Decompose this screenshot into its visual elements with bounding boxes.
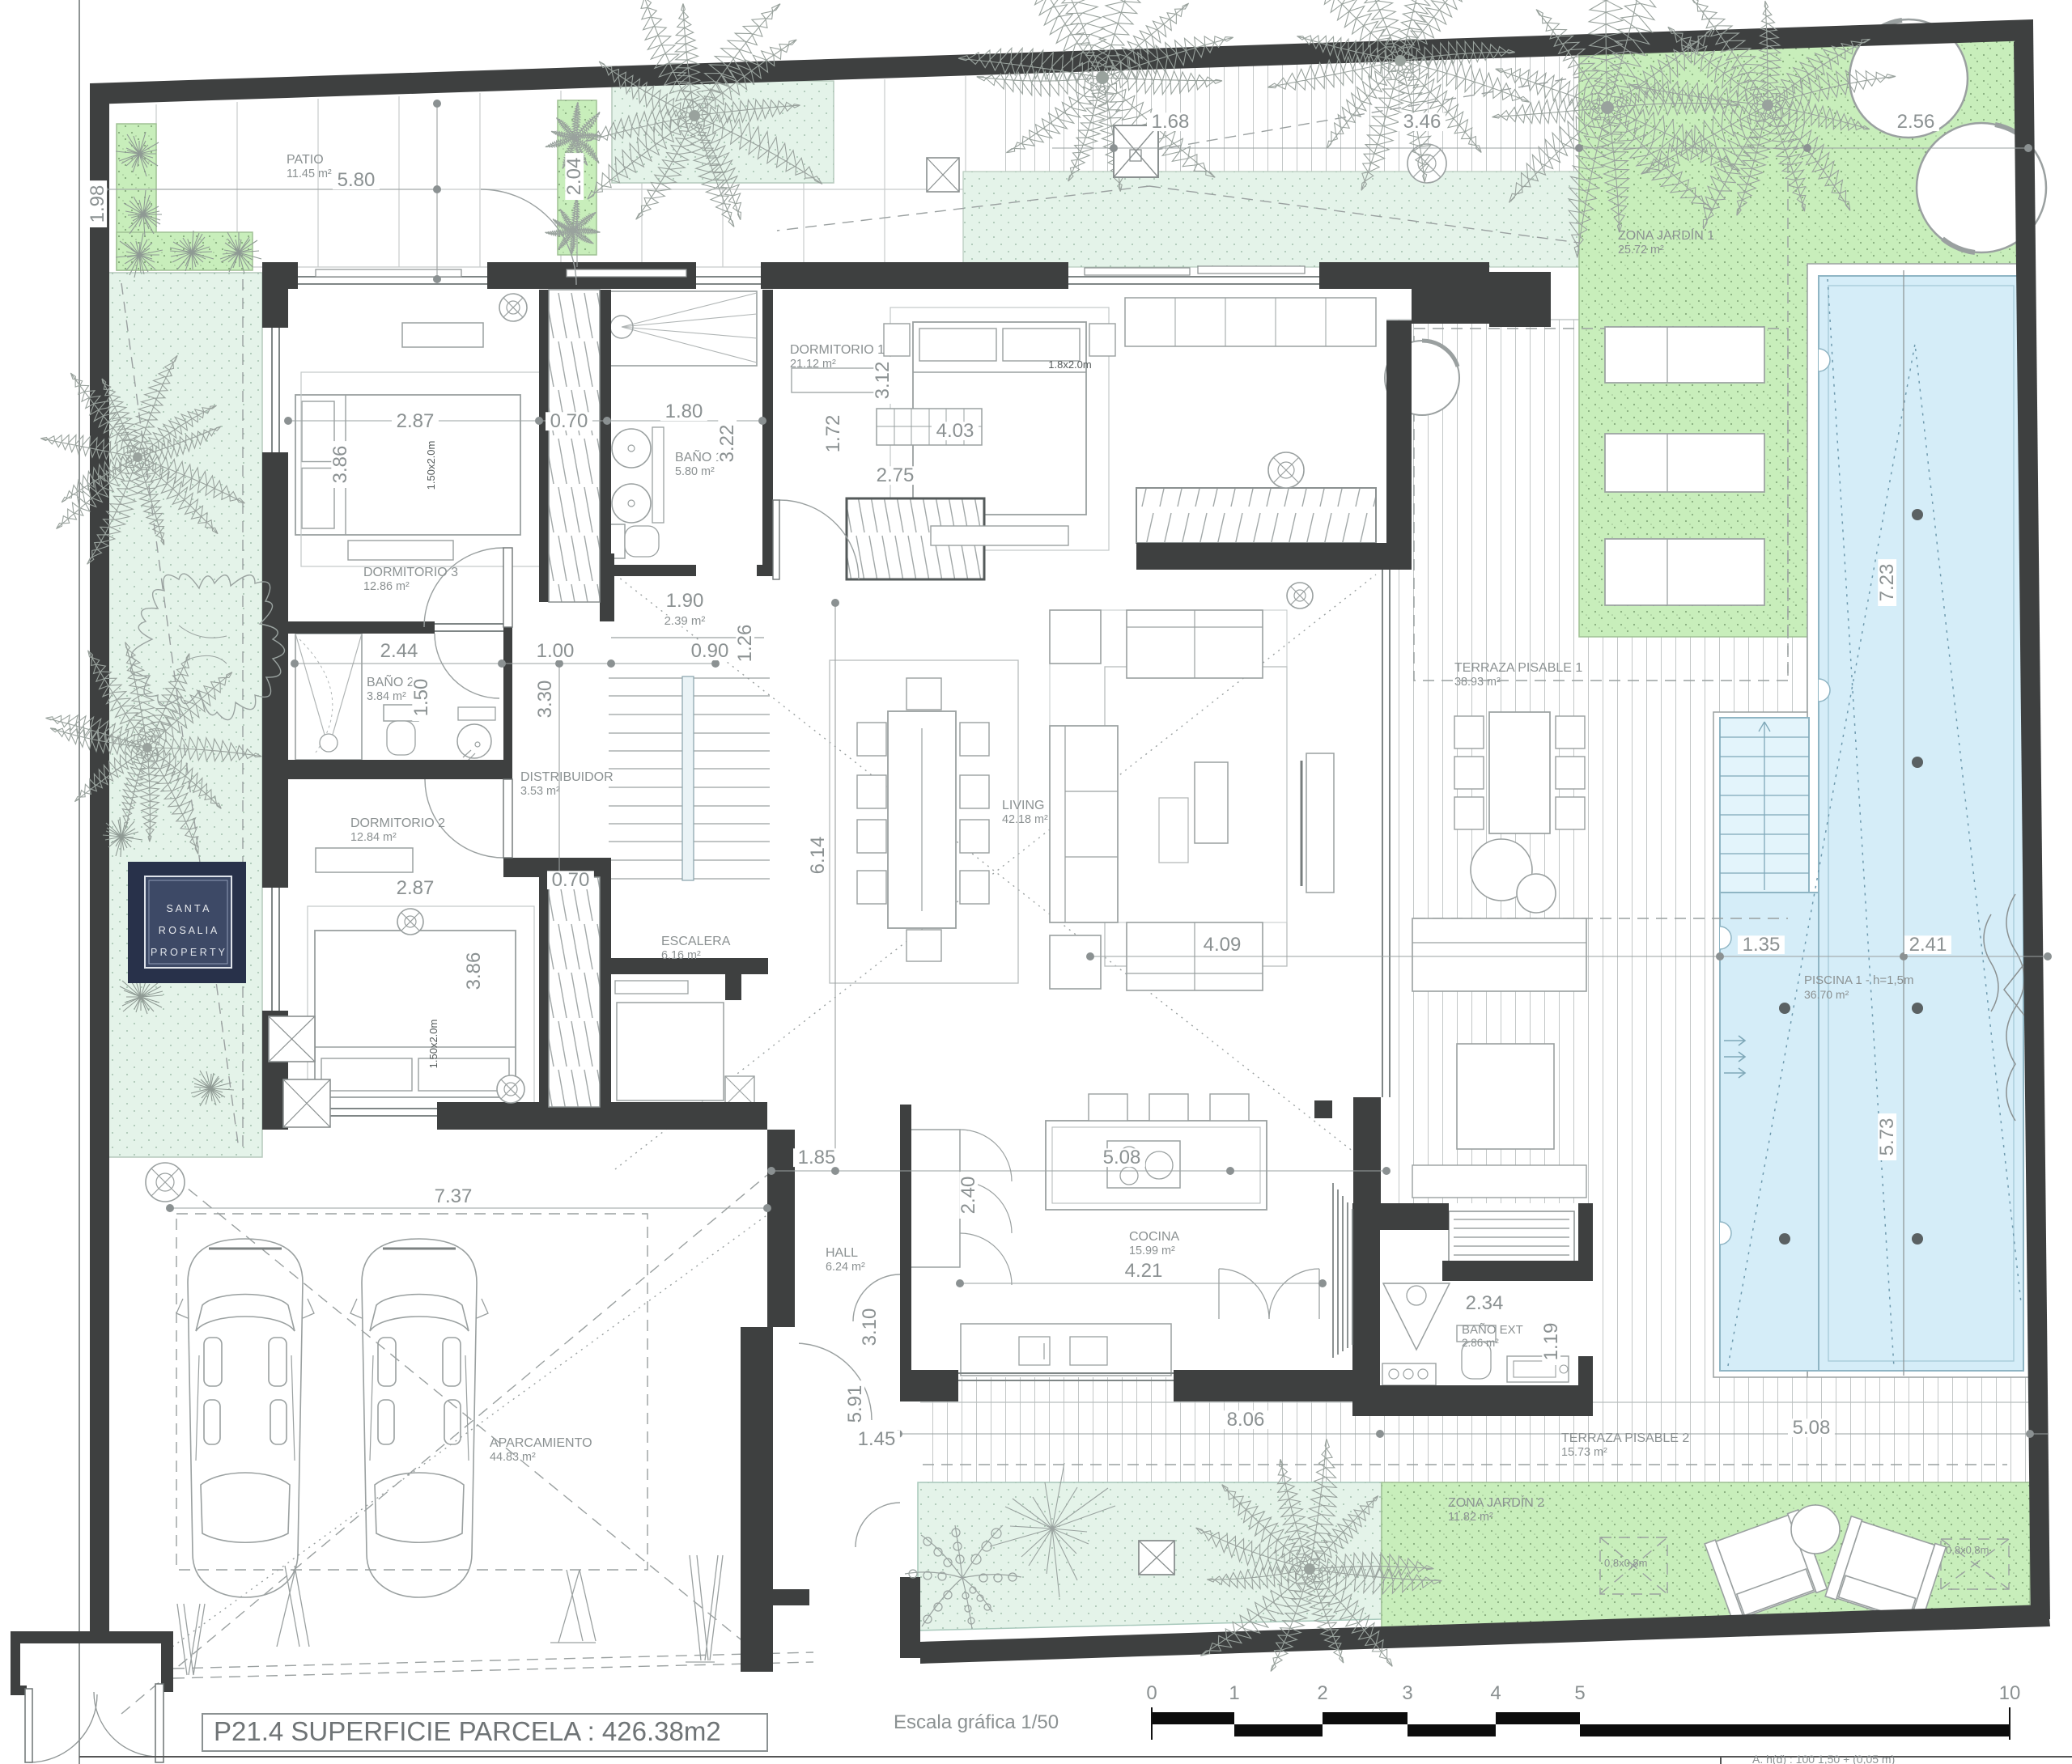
svg-text:8.06: 8.06 bbox=[1227, 1409, 1265, 1431]
svg-text:2.04: 2.04 bbox=[563, 158, 585, 196]
svg-text:0,8x0,8m: 0,8x0,8m bbox=[1604, 1557, 1647, 1569]
svg-text:25.72 m²: 25.72 m² bbox=[1618, 244, 1664, 257]
svg-text:TERRAZA PISABLE 2: TERRAZA PISABLE 2 bbox=[1561, 1431, 1689, 1445]
svg-text:2.41: 2.41 bbox=[1909, 934, 1947, 956]
svg-text:11.45 m²: 11.45 m² bbox=[287, 167, 332, 180]
svg-text:DORMITORIO 3: DORMITORIO 3 bbox=[363, 566, 458, 579]
svg-text:S A N T A: S A N T A bbox=[166, 903, 210, 914]
svg-text:BAÑO 2: BAÑO 2 bbox=[367, 673, 414, 689]
svg-text:HALL: HALL bbox=[826, 1246, 858, 1260]
svg-text:2.56: 2.56 bbox=[1897, 111, 1935, 133]
svg-text:ESCALERA: ESCALERA bbox=[661, 935, 731, 948]
svg-text:11.82 m²: 11.82 m² bbox=[1448, 1511, 1493, 1524]
svg-text:6.24 m²: 6.24 m² bbox=[826, 1261, 865, 1274]
svg-text:LIVING: LIVING bbox=[1002, 799, 1044, 812]
svg-text:2.44: 2.44 bbox=[380, 640, 418, 662]
svg-text:5: 5 bbox=[1574, 1682, 1585, 1704]
svg-text:4.03: 4.03 bbox=[936, 420, 974, 442]
svg-text:R O S A L I A: R O S A L I A bbox=[159, 925, 218, 936]
svg-text:1.50x2.0m: 1.50x2.0m bbox=[427, 1020, 439, 1069]
svg-text:15.73 m²: 15.73 m² bbox=[1561, 1446, 1607, 1459]
svg-text:5.91: 5.91 bbox=[844, 1385, 866, 1423]
svg-text:1.35: 1.35 bbox=[1743, 934, 1781, 956]
svg-text:12.86 m²: 12.86 m² bbox=[363, 580, 410, 593]
svg-text:6.14: 6.14 bbox=[807, 837, 829, 875]
svg-text:3: 3 bbox=[1402, 1682, 1412, 1704]
svg-text:DISTRIBUIDOR: DISTRIBUIDOR bbox=[520, 770, 614, 784]
svg-text:3.84 m²: 3.84 m² bbox=[367, 690, 406, 703]
svg-text:5.80: 5.80 bbox=[338, 169, 376, 191]
svg-text:4.09: 4.09 bbox=[1204, 934, 1242, 956]
svg-text:4.21: 4.21 bbox=[1125, 1260, 1163, 1282]
svg-text:0.70: 0.70 bbox=[550, 410, 588, 432]
svg-text:2.87: 2.87 bbox=[397, 410, 435, 432]
svg-text:3.86: 3.86 bbox=[463, 952, 485, 990]
svg-text:0,8x0,8m: 0,8x0,8m bbox=[1946, 1544, 1989, 1556]
svg-text:TERRAZA PISABLE 1: TERRAZA PISABLE 1 bbox=[1454, 661, 1582, 675]
svg-text:COCINA: COCINA bbox=[1129, 1230, 1180, 1244]
svg-text:1.00: 1.00 bbox=[537, 640, 575, 662]
svg-text:3.12: 3.12 bbox=[872, 362, 894, 400]
svg-text:12.84 m²: 12.84 m² bbox=[350, 831, 397, 844]
svg-text:5.73: 5.73 bbox=[1876, 1118, 1898, 1156]
svg-text:1: 1 bbox=[1229, 1682, 1239, 1704]
svg-text:Escala gráfica 1/50: Escala gráfica 1/50 bbox=[894, 1711, 1059, 1733]
svg-text:44.83 m²: 44.83 m² bbox=[490, 1451, 536, 1464]
svg-text:15.99 m²: 15.99 m² bbox=[1129, 1245, 1175, 1257]
svg-text:6.16 m²: 6.16 m² bbox=[661, 949, 701, 962]
svg-text:1.90: 1.90 bbox=[666, 590, 704, 612]
svg-text:P R O P E R T Y: P R O P E R T Y bbox=[151, 947, 226, 958]
svg-text:ZONA JARDÍN 1: ZONA JARDÍN 1 bbox=[1618, 227, 1714, 243]
svg-text:1.72: 1.72 bbox=[822, 415, 844, 453]
svg-text:P21.4 SUPERFICIE PARCELA : 42: P21.4 SUPERFICIE PARCELA : 426.38m2 bbox=[214, 1716, 721, 1746]
svg-text:1.50: 1.50 bbox=[410, 679, 432, 717]
svg-text:2.87: 2.87 bbox=[397, 877, 435, 899]
svg-text:A. h(d) : 100 1,50 + (0,05 m): A. h(d) : 100 1,50 + (0,05 m) bbox=[1752, 1753, 1895, 1764]
svg-text:0: 0 bbox=[1146, 1682, 1157, 1704]
svg-text:0.90: 0.90 bbox=[691, 640, 729, 662]
svg-text:1.8x2.0m: 1.8x2.0m bbox=[1048, 358, 1091, 371]
svg-text:PATIO: PATIO bbox=[287, 153, 324, 167]
svg-text:42.18 m²: 42.18 m² bbox=[1002, 813, 1048, 826]
svg-text:3.22: 3.22 bbox=[716, 425, 738, 463]
svg-text:3.30: 3.30 bbox=[534, 681, 556, 719]
svg-text:10: 10 bbox=[1999, 1682, 2021, 1704]
svg-text:5.80 m²: 5.80 m² bbox=[675, 465, 715, 478]
svg-text:1.45: 1.45 bbox=[858, 1428, 896, 1450]
svg-text:7.23: 7.23 bbox=[1876, 564, 1898, 602]
svg-text:2.75: 2.75 bbox=[877, 464, 915, 486]
svg-text:5.08: 5.08 bbox=[1793, 1417, 1831, 1439]
svg-text:38.93 m²: 38.93 m² bbox=[1454, 676, 1501, 689]
svg-text:5.08: 5.08 bbox=[1103, 1147, 1141, 1168]
svg-text:3.53 m²: 3.53 m² bbox=[520, 785, 560, 798]
svg-text:DORMITORIO 2: DORMITORIO 2 bbox=[350, 816, 445, 830]
svg-text:1.68: 1.68 bbox=[1152, 111, 1190, 133]
svg-text:7.37: 7.37 bbox=[435, 1185, 473, 1207]
svg-text:21.12 m²: 21.12 m² bbox=[790, 358, 836, 371]
svg-text:4: 4 bbox=[1490, 1682, 1501, 1704]
svg-text:DORMITORIO 1: DORMITORIO 1 bbox=[790, 343, 885, 357]
svg-text:1.26: 1.26 bbox=[734, 625, 756, 663]
svg-text:ZONA JARDÍN 2: ZONA JARDÍN 2 bbox=[1448, 1495, 1544, 1510]
svg-text:2.40: 2.40 bbox=[957, 1177, 979, 1215]
svg-text:3.46: 3.46 bbox=[1403, 111, 1441, 133]
svg-text:3.86: 3.86 bbox=[329, 446, 351, 484]
svg-text:1.80: 1.80 bbox=[665, 401, 703, 422]
svg-text:2.86 m²: 2.86 m² bbox=[1462, 1337, 1499, 1349]
svg-text:BAÑO 1: BAÑO 1 bbox=[675, 448, 723, 464]
svg-text:0.70: 0.70 bbox=[552, 869, 590, 891]
svg-text:APARCAMIENTO: APARCAMIENTO bbox=[490, 1436, 592, 1450]
svg-text:3.10: 3.10 bbox=[859, 1308, 881, 1346]
svg-text:PISCINA 1 - h=1,5m: PISCINA 1 - h=1,5m bbox=[1804, 973, 1913, 987]
svg-text:1.19: 1.19 bbox=[1540, 1323, 1562, 1361]
svg-text:2.39 m²: 2.39 m² bbox=[664, 614, 706, 628]
svg-text:2.34: 2.34 bbox=[1466, 1292, 1504, 1314]
svg-text:36.70 m²: 36.70 m² bbox=[1804, 988, 1849, 1001]
svg-text:1.50x2.0m: 1.50x2.0m bbox=[425, 441, 437, 490]
svg-text:1.98: 1.98 bbox=[87, 185, 108, 223]
svg-text:BAÑO EXT: BAÑO EXT bbox=[1462, 1323, 1523, 1337]
svg-text:2: 2 bbox=[1317, 1682, 1327, 1704]
svg-text:1.85: 1.85 bbox=[798, 1147, 836, 1168]
